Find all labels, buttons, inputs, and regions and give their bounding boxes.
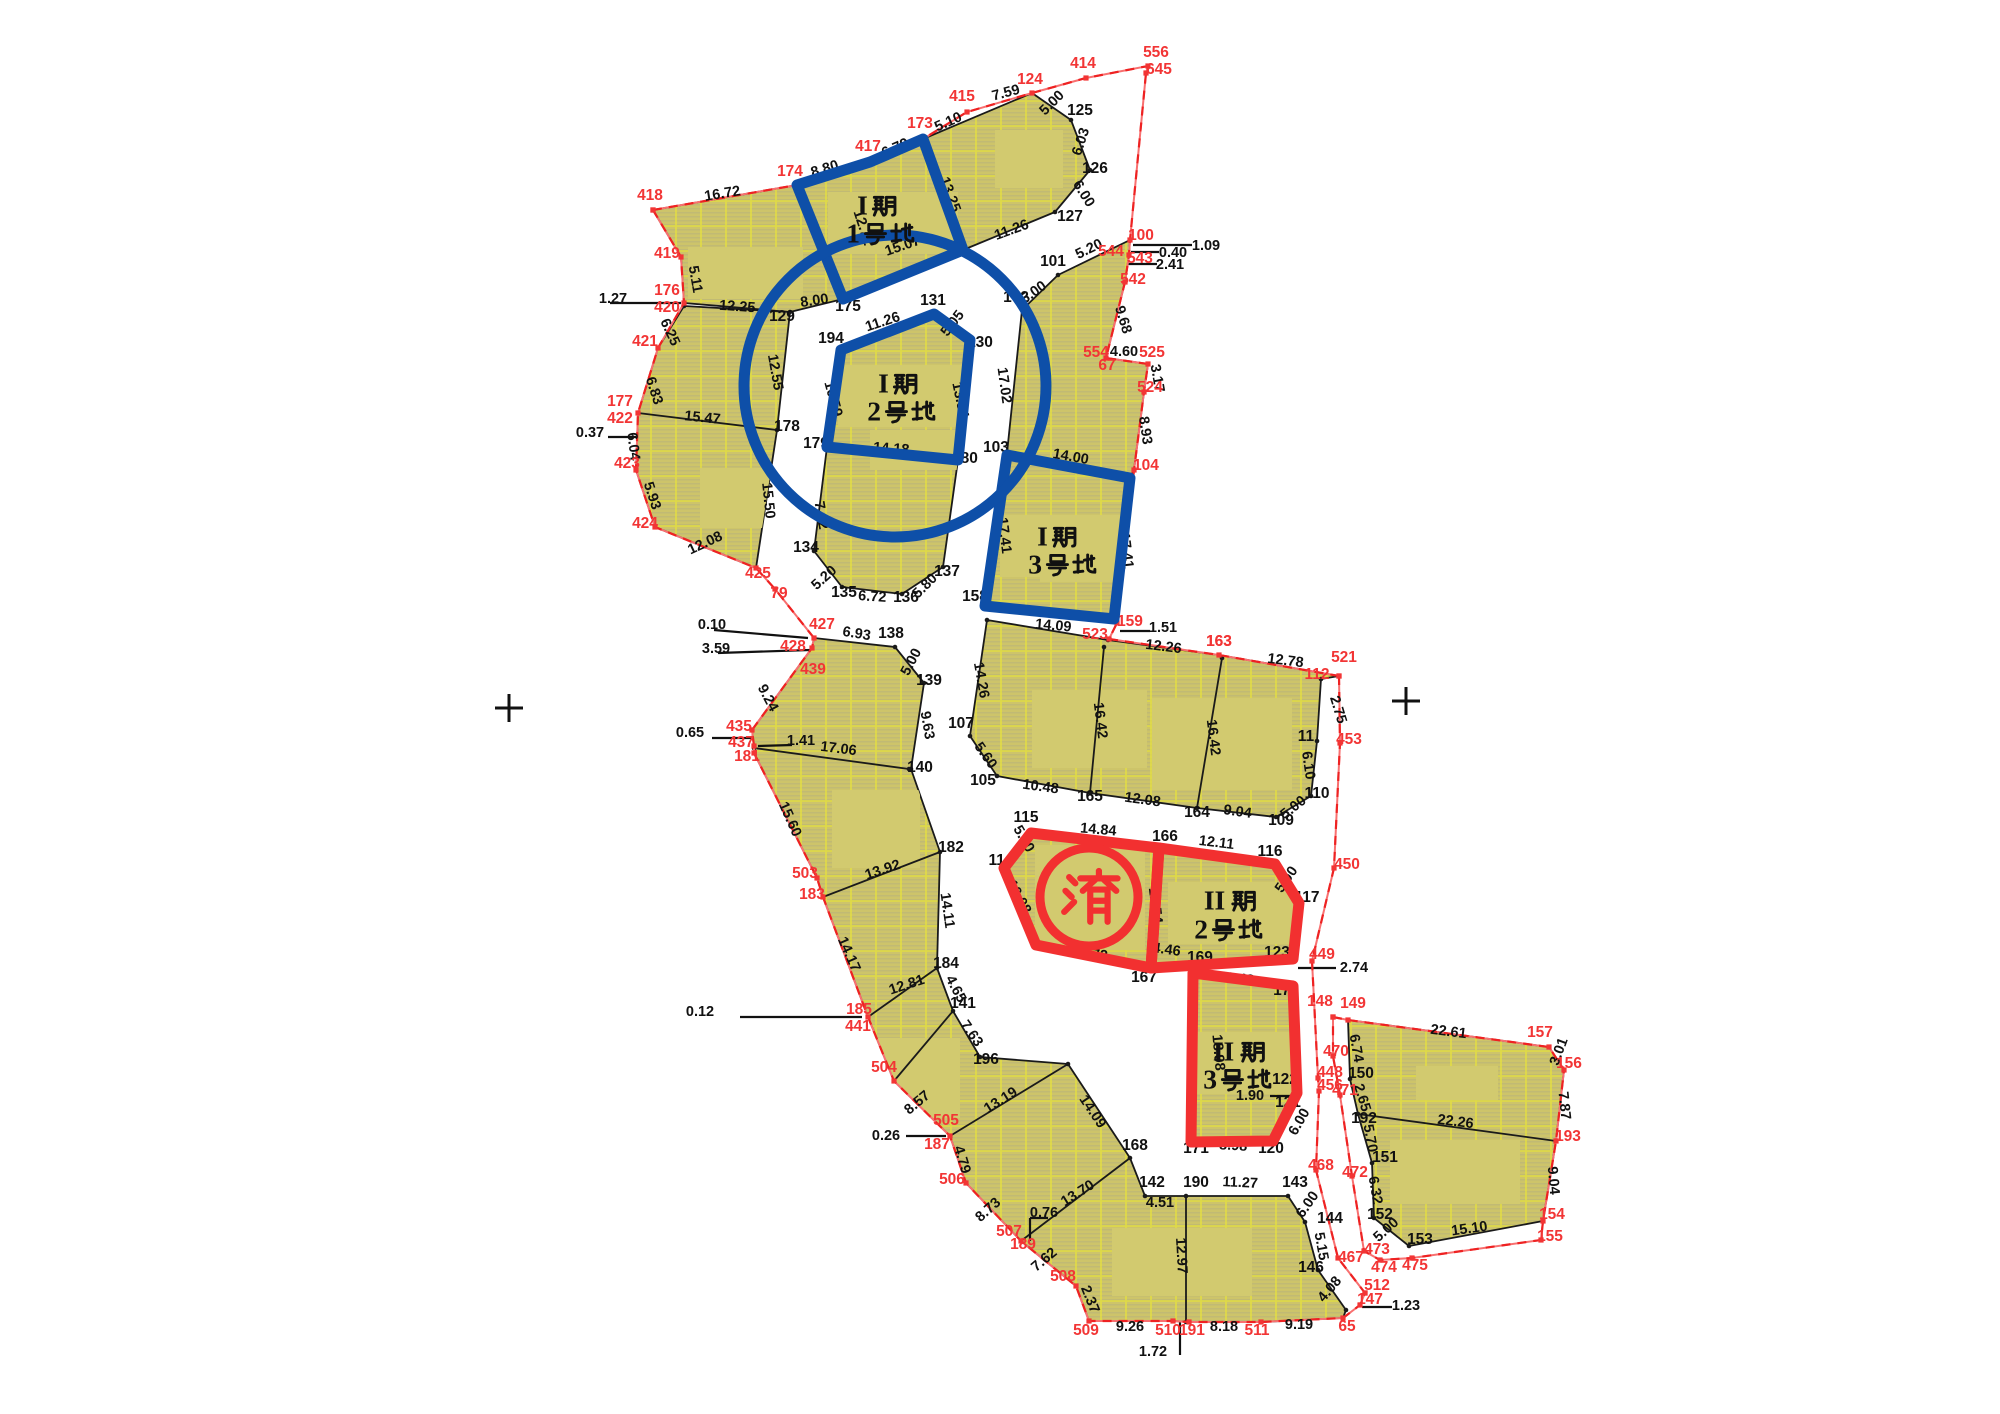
svg-text:105: 105 [970,772,996,789]
svg-text:0.26: 0.26 [872,1128,900,1144]
svg-text:153: 153 [1407,1231,1433,1248]
svg-text:141: 141 [950,995,976,1012]
svg-text:6.72: 6.72 [858,588,887,606]
svg-text:178: 178 [774,418,800,435]
svg-text:12.97: 12.97 [1172,1237,1190,1274]
svg-text:191: 191 [1179,1322,1205,1339]
svg-text:511: 511 [1244,1322,1269,1339]
svg-text:189: 189 [1010,1236,1036,1253]
svg-text:1.41: 1.41 [787,733,815,749]
svg-text:149: 149 [1340,995,1366,1012]
svg-text:3: 3 [1028,549,1042,580]
svg-text:414: 414 [1070,55,1096,72]
svg-text:131: 131 [920,292,946,309]
svg-text:168: 168 [1122,1137,1148,1154]
svg-text:124: 124 [1017,71,1043,88]
svg-text:543: 543 [1127,250,1153,267]
svg-text:2.74: 2.74 [1340,960,1368,976]
svg-text:542: 542 [1120,271,1146,288]
svg-text:468: 468 [1308,1157,1334,1174]
svg-text:470: 470 [1323,1043,1349,1060]
svg-text:435: 435 [726,718,752,735]
svg-text:12.25: 12.25 [719,298,756,316]
svg-text:1.72: 1.72 [1139,1344,1167,1360]
svg-text:472: 472 [1342,1164,1368,1181]
svg-text:428: 428 [780,638,806,655]
svg-text:417: 417 [855,138,881,155]
svg-text:125: 125 [1067,102,1093,119]
svg-text:1.23: 1.23 [1392,1298,1420,1314]
svg-text:521: 521 [1331,649,1357,666]
svg-text:177: 177 [607,393,633,410]
svg-text:471: 471 [1332,1082,1358,1099]
svg-text:I: I [878,368,889,399]
svg-text:449: 449 [1309,946,1335,963]
svg-text:437: 437 [728,734,754,751]
svg-text:1.27: 1.27 [599,291,627,307]
svg-text:127: 127 [1057,208,1083,225]
svg-text:7.87: 7.87 [1555,1091,1574,1121]
svg-text:150: 150 [1348,1065,1374,1082]
svg-text:1.09: 1.09 [1192,238,1220,254]
svg-text:439: 439 [800,661,826,678]
svg-text:104: 104 [1133,457,1159,474]
svg-text:0.65: 0.65 [676,725,704,741]
svg-text:0.10: 0.10 [698,617,726,633]
svg-text:510: 510 [1155,1322,1181,1339]
svg-text:453: 453 [1336,731,1362,748]
svg-text:146: 146 [1298,1259,1324,1276]
svg-text:I: I [1037,521,1048,552]
svg-text:645: 645 [1146,61,1172,78]
svg-text:147: 147 [1357,1291,1383,1308]
svg-text:421: 421 [632,333,658,350]
svg-text:79: 79 [770,585,788,602]
svg-text:419: 419 [654,245,680,262]
svg-text:3: 3 [1203,1064,1217,1095]
svg-text:115: 115 [1013,809,1038,826]
svg-text:475: 475 [1402,1257,1428,1274]
svg-text:423: 423 [614,455,640,472]
svg-text:144: 144 [1317,1210,1343,1227]
svg-text:425: 425 [745,565,771,582]
svg-text:174: 174 [777,163,803,180]
svg-text:4.51: 4.51 [1146,1195,1174,1211]
svg-text:101: 101 [1040,253,1066,270]
svg-text:138: 138 [878,625,904,642]
svg-text:427: 427 [809,616,835,633]
svg-text:503: 503 [792,865,818,882]
svg-text:140: 140 [907,759,933,776]
svg-text:67: 67 [1098,357,1115,374]
svg-text:0.37: 0.37 [576,425,604,441]
svg-text:506: 506 [939,1171,965,1188]
svg-text:441: 441 [845,1018,871,1035]
svg-text:467: 467 [1338,1249,1364,1266]
svg-text:129: 129 [769,308,795,325]
svg-text:156: 156 [1556,1055,1582,1072]
svg-text:137: 137 [934,563,960,580]
svg-text:134: 134 [793,539,819,556]
svg-text:8.18: 8.18 [1210,1319,1238,1335]
svg-text:523: 523 [1082,626,1108,643]
svg-text:508: 508 [1050,1268,1076,1285]
svg-text:556: 556 [1143,44,1169,61]
svg-text:9.04: 9.04 [1544,1166,1562,1196]
svg-text:185: 185 [846,1001,872,1018]
svg-text:1.90: 1.90 [1236,1088,1264,1104]
svg-text:196: 196 [973,1051,999,1068]
svg-text:155: 155 [1537,1228,1563,1245]
svg-text:450: 450 [1334,856,1360,873]
svg-text:112: 112 [1304,666,1329,683]
svg-text:2: 2 [1194,914,1208,945]
svg-text:424: 424 [632,515,658,532]
svg-text:176: 176 [654,282,680,299]
svg-text:I: I [857,190,868,221]
svg-text:157: 157 [1527,1024,1553,1041]
svg-text:136: 136 [893,589,919,606]
svg-text:151: 151 [1372,1149,1398,1166]
svg-text:143: 143 [1282,1174,1308,1191]
svg-text:9.26: 9.26 [1116,1319,1144,1335]
svg-text:11.27: 11.27 [1222,1174,1258,1192]
svg-text:473: 473 [1364,1241,1390,1258]
svg-text:525: 525 [1139,344,1165,361]
svg-text:187: 187 [924,1136,950,1153]
svg-text:107: 107 [948,715,974,732]
svg-text:1.51: 1.51 [1149,620,1177,636]
svg-text:9.19: 9.19 [1285,1317,1313,1333]
svg-text:142: 142 [1139,1174,1165,1191]
svg-text:173: 173 [907,115,933,132]
svg-text:415: 415 [949,88,975,105]
svg-text:192: 192 [1351,1110,1377,1127]
svg-text:65: 65 [1338,1318,1356,1335]
svg-text:193: 193 [1555,1128,1581,1145]
svg-text:420: 420 [654,299,680,316]
svg-text:110: 110 [1304,785,1329,802]
svg-text:139: 139 [916,672,942,689]
svg-text:165: 165 [1077,788,1103,805]
svg-text:II: II [1213,1036,1234,1067]
svg-text:422: 422 [607,410,633,427]
svg-text:152: 152 [1367,1206,1393,1223]
svg-text:126: 126 [1082,160,1108,177]
svg-text:0.76: 0.76 [1030,1205,1058,1221]
svg-text:II: II [1204,885,1225,916]
svg-text:163: 163 [1206,633,1232,650]
svg-text:504: 504 [871,1059,897,1076]
svg-text:182: 182 [938,839,964,856]
svg-text:524: 524 [1137,379,1163,396]
svg-text:544: 544 [1098,243,1124,260]
svg-text:505: 505 [933,1112,959,1129]
svg-text:418: 418 [637,187,663,204]
svg-text:2.41: 2.41 [1156,257,1184,273]
svg-text:109: 109 [1268,812,1294,829]
svg-text:164: 164 [1184,804,1210,821]
svg-text:135: 135 [831,584,857,601]
svg-text:183: 183 [799,886,825,903]
svg-text:190: 190 [1183,1174,1209,1191]
svg-text:509: 509 [1073,1322,1099,1339]
svg-text:154: 154 [1539,1206,1565,1223]
svg-text:184: 184 [933,955,959,972]
svg-text:100: 100 [1128,227,1154,244]
svg-text:2: 2 [867,396,881,427]
svg-text:159: 159 [1117,613,1143,630]
svg-text:148: 148 [1307,993,1333,1010]
svg-text:474: 474 [1371,1259,1397,1276]
svg-text:11: 11 [1298,728,1315,745]
svg-text:1: 1 [846,218,860,249]
svg-text:3.59: 3.59 [702,641,730,657]
svg-text:0.12: 0.12 [686,1004,714,1020]
